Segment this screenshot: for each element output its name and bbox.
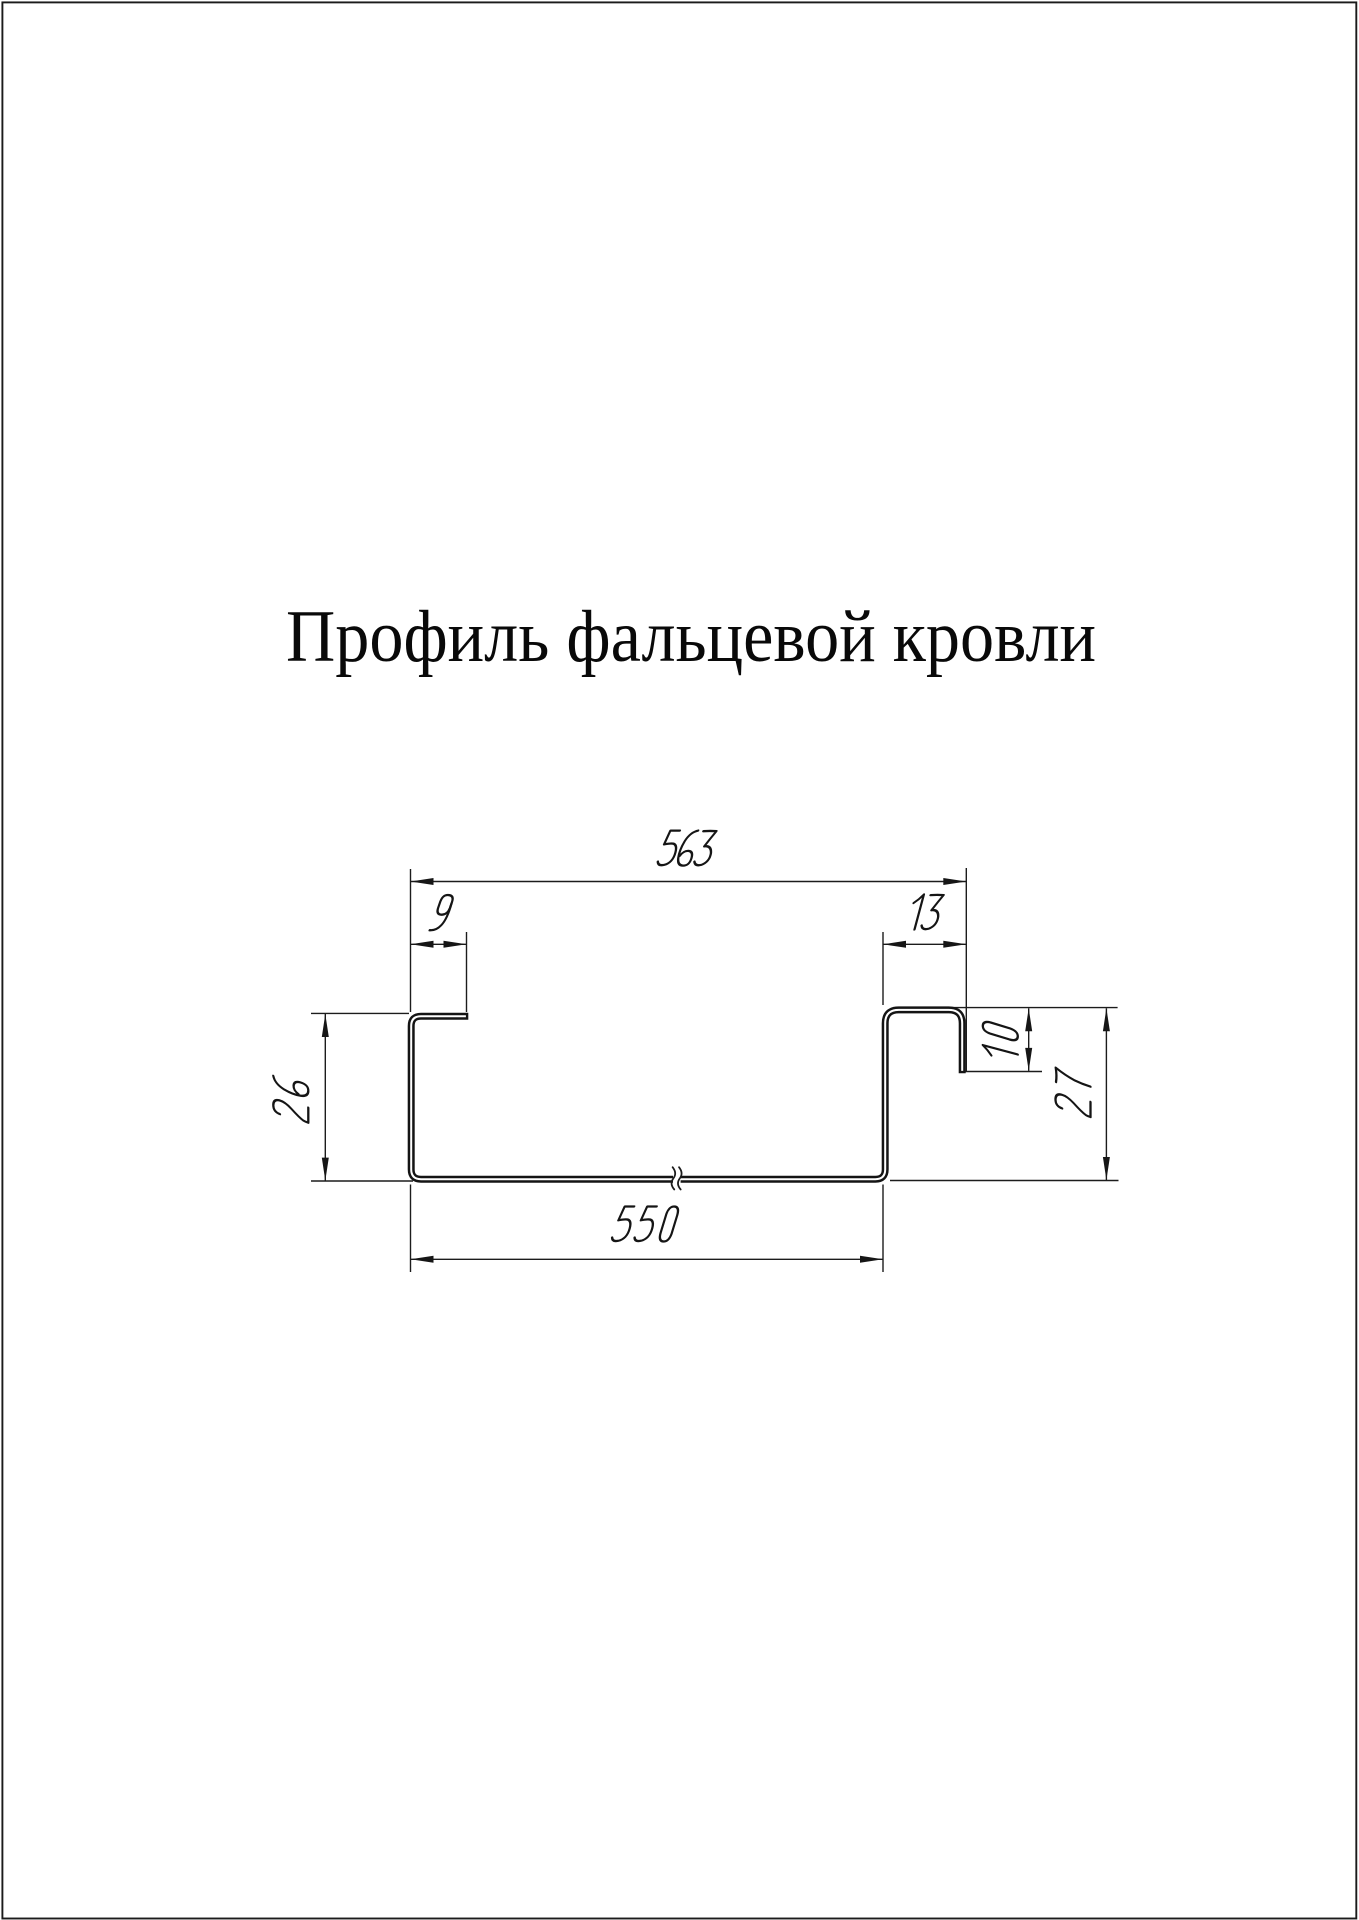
svg-text:Профиль фальцевой кровли: Профиль фальцевой кровли [286, 597, 1096, 678]
